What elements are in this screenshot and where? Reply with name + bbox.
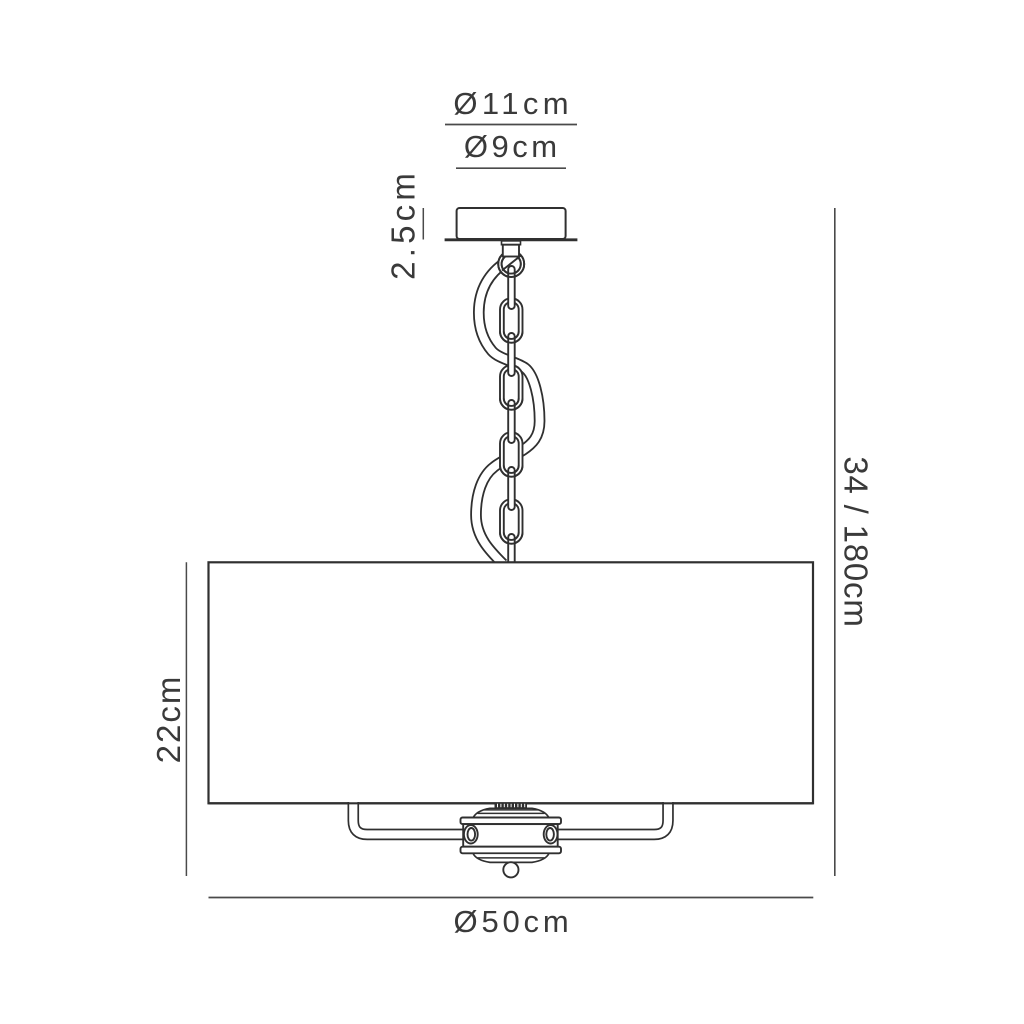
svg-text:22cm: 22cm	[150, 675, 187, 764]
svg-text:2.5cm: 2.5cm	[385, 169, 422, 280]
svg-text:Ø11cm: Ø11cm	[453, 86, 573, 121]
svg-text:Ø50cm: Ø50cm	[454, 904, 573, 939]
svg-text:34 / 180cm: 34 / 180cm	[838, 456, 875, 627]
svg-text:Ø9cm: Ø9cm	[464, 129, 561, 164]
